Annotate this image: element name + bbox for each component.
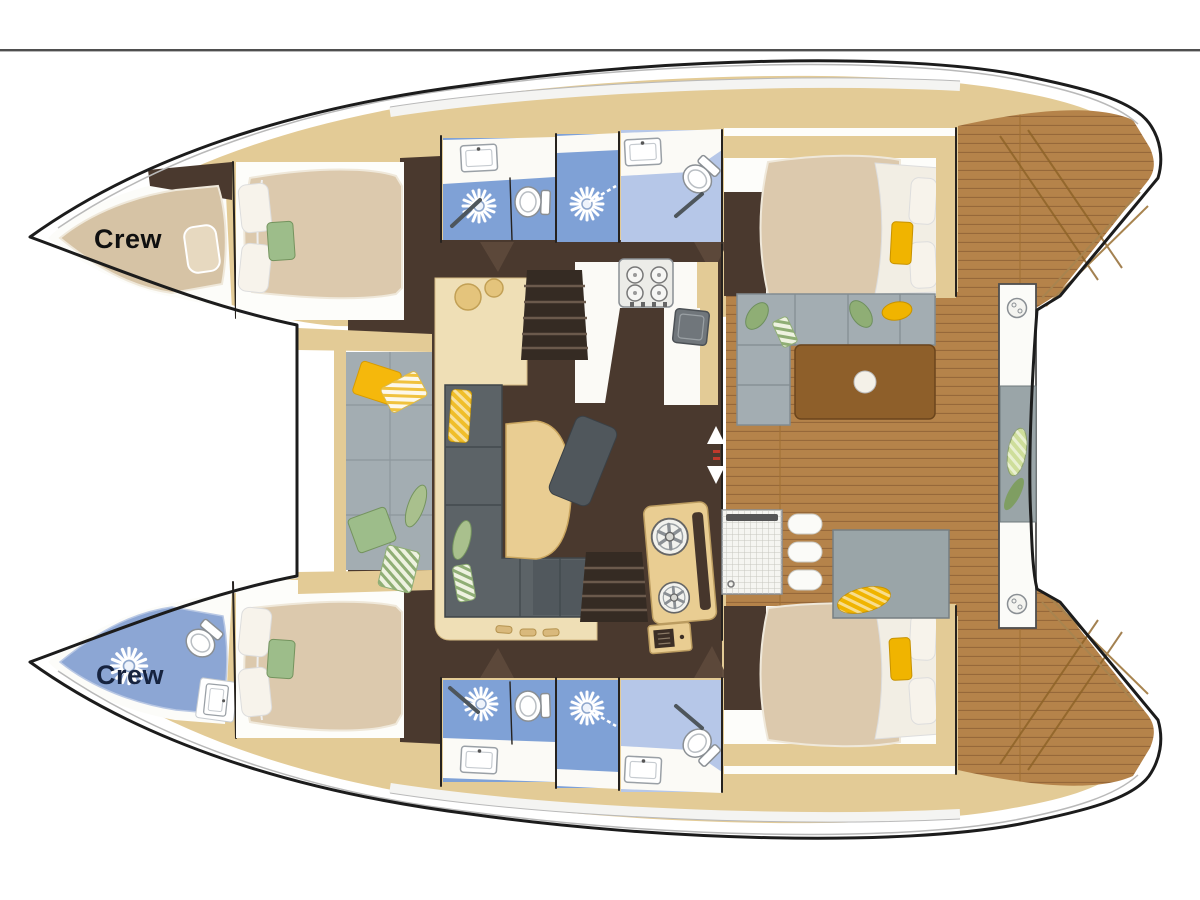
sink-icon xyxy=(203,684,228,717)
starboard-bathrooms xyxy=(441,678,723,793)
port-bathrooms xyxy=(441,129,723,242)
cabin-shelf xyxy=(724,744,956,766)
deck-hatch-icon xyxy=(1008,595,1027,614)
aft-cabin-port xyxy=(724,128,956,299)
cabin-shelf xyxy=(724,136,956,158)
bed-pillow xyxy=(909,241,937,288)
catamaran-layout-diagram: Crew xyxy=(0,0,1200,900)
green-cushion xyxy=(267,221,296,261)
headboard xyxy=(936,604,956,744)
shower-stall-starboard xyxy=(557,680,619,789)
cabin-entry xyxy=(724,192,766,296)
coachroof-edge xyxy=(334,334,346,590)
yellow-striped-pillow xyxy=(448,389,472,442)
aft-cabin-starboard xyxy=(724,603,956,774)
yellow-accent-pillow xyxy=(890,222,913,265)
bed-pillow xyxy=(238,607,273,658)
vanity-counter xyxy=(443,738,555,782)
shower-head-icon xyxy=(571,188,603,220)
catamaran-layout-screenshot: Crew xyxy=(0,0,1200,900)
companionway-stairs-starboard xyxy=(580,552,648,622)
forward-cabin-starboard xyxy=(236,580,404,738)
head-compartment-port xyxy=(621,129,723,242)
forward-cabin-port xyxy=(236,162,404,320)
galley-sink-bowl xyxy=(455,284,481,310)
yellow-accent-pillow xyxy=(889,637,912,680)
table-inlay xyxy=(854,371,876,393)
shower-head-icon xyxy=(571,692,603,724)
bench-slats xyxy=(788,514,822,590)
page-top-divider xyxy=(0,49,1200,51)
sink-icon xyxy=(624,756,661,784)
crew-label-starboard: Crew xyxy=(96,660,165,690)
sink-icon xyxy=(460,746,497,774)
cabin-entry xyxy=(724,606,766,710)
shower-head-icon xyxy=(463,190,495,222)
companionway-stairs-port xyxy=(521,270,588,360)
grid-table xyxy=(722,510,782,594)
instrument-panel xyxy=(648,622,692,654)
shower-room-starboard xyxy=(443,680,555,782)
vanity-counter xyxy=(443,137,555,184)
stove-icon xyxy=(619,259,673,307)
headboard xyxy=(936,158,956,298)
crew-pillow xyxy=(183,224,221,274)
winch-console xyxy=(643,501,717,624)
bed-pillow xyxy=(908,177,937,225)
sink-icon xyxy=(624,138,661,166)
galley-sink-square xyxy=(672,308,709,345)
head-compartment-starboard xyxy=(621,680,723,793)
galley-sink-bowl xyxy=(485,279,503,297)
shower-stall-port xyxy=(557,133,619,242)
shower-room-port xyxy=(443,137,555,240)
bed-pillow xyxy=(909,613,937,660)
bed-pillow xyxy=(238,243,273,294)
crew-label-port: Crew xyxy=(94,224,163,254)
toilet-icon xyxy=(514,186,550,217)
bed-pillow xyxy=(908,677,937,725)
deck-hatch-icon xyxy=(1008,299,1027,318)
green-cushion xyxy=(267,639,296,679)
toilet-icon xyxy=(514,690,550,721)
sink-icon xyxy=(460,144,497,172)
